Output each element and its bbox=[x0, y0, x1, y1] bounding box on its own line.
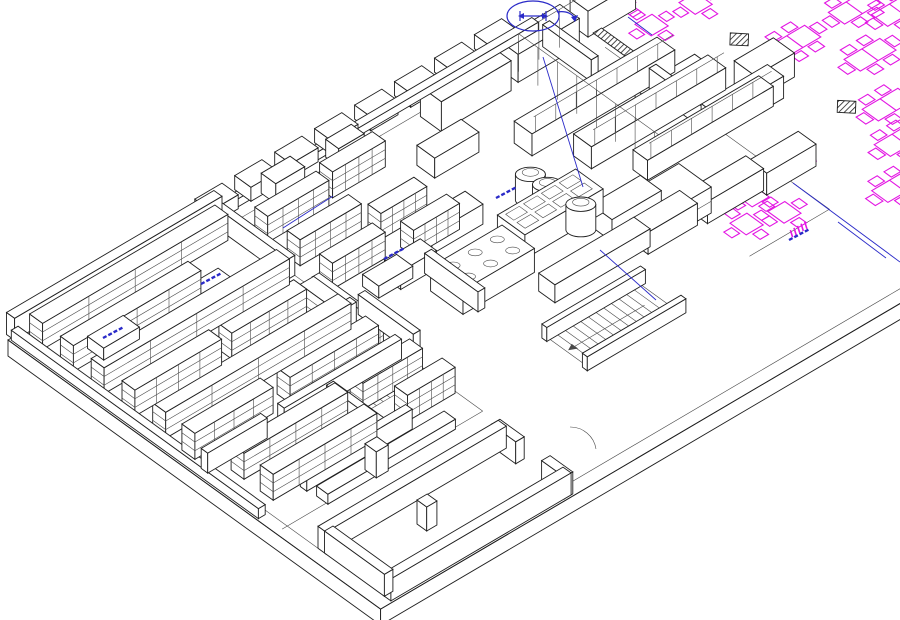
section-line bbox=[838, 222, 886, 258]
label-glyph bbox=[119, 328, 123, 330]
dining-table-4seat bbox=[673, 0, 719, 19]
kitchen-equipment bbox=[417, 119, 479, 178]
table-seam bbox=[862, 49, 878, 61]
label-glyph bbox=[800, 232, 804, 234]
chair bbox=[865, 18, 882, 30]
table-top bbox=[872, 0, 900, 26]
kitchen-equipment bbox=[417, 494, 437, 531]
label-glyph bbox=[789, 238, 793, 240]
chair bbox=[856, 113, 873, 125]
chair bbox=[810, 22, 827, 34]
section-line bbox=[628, 17, 652, 35]
chair bbox=[702, 9, 718, 19]
dining-table-6seat bbox=[838, 35, 900, 75]
dining-table-6seat bbox=[868, 120, 900, 160]
table-seam bbox=[846, 2, 862, 14]
chair bbox=[724, 228, 740, 238]
table-seam bbox=[889, 4, 900, 16]
chair bbox=[659, 11, 675, 21]
label-glyph bbox=[507, 190, 511, 192]
chair bbox=[866, 194, 883, 206]
kettle-lid bbox=[522, 169, 538, 177]
label-glyph bbox=[114, 330, 118, 332]
chair bbox=[884, 0, 900, 1]
chair bbox=[754, 210, 770, 220]
table-seam bbox=[892, 134, 900, 146]
label-glyph bbox=[201, 282, 205, 284]
label-glyph bbox=[212, 276, 216, 278]
chair bbox=[629, 29, 645, 39]
label-glyph bbox=[384, 257, 388, 259]
label-glyph bbox=[217, 274, 221, 276]
structural-column-hatched bbox=[730, 33, 749, 46]
table-seam bbox=[890, 180, 900, 192]
isometric-floor-plan-drawing bbox=[0, 0, 900, 620]
chair bbox=[822, 16, 839, 27]
chair bbox=[791, 218, 807, 228]
kitchen-equipment bbox=[365, 437, 388, 478]
label-glyph bbox=[496, 196, 500, 198]
label-glyph bbox=[389, 254, 393, 256]
table-seam bbox=[880, 99, 896, 111]
cad-viewport bbox=[0, 0, 900, 620]
chair bbox=[838, 63, 855, 75]
chair bbox=[753, 229, 769, 239]
symbol-arrowhead bbox=[518, 13, 524, 19]
dining-table-6seat bbox=[866, 166, 900, 206]
chair bbox=[885, 35, 900, 47]
label-glyph bbox=[805, 230, 809, 232]
table-top bbox=[679, 0, 712, 14]
structural-column-hatched bbox=[837, 100, 856, 113]
chair bbox=[791, 198, 807, 208]
section-line bbox=[793, 183, 900, 262]
chair bbox=[673, 7, 689, 17]
dining-table-6seat bbox=[822, 0, 886, 28]
dining-table-4seat bbox=[724, 209, 770, 240]
label-glyph bbox=[512, 188, 516, 190]
chair bbox=[762, 216, 778, 226]
label-glyph bbox=[206, 279, 210, 281]
chair bbox=[868, 148, 885, 160]
kettle-lid bbox=[573, 198, 589, 206]
door-swing-arc bbox=[570, 427, 596, 449]
dining-table-6seat bbox=[856, 85, 900, 125]
illegible-blue-label bbox=[496, 188, 515, 198]
table-seam bbox=[787, 36, 803, 48]
label-glyph bbox=[103, 336, 107, 338]
steam-kettle bbox=[566, 197, 596, 237]
furniture-equipment-layer bbox=[7, 0, 817, 601]
label-glyph bbox=[400, 249, 404, 251]
label-glyph bbox=[108, 333, 112, 335]
label-glyph bbox=[395, 251, 399, 253]
label-glyph bbox=[794, 235, 798, 237]
label-glyph bbox=[501, 193, 505, 195]
dining-table-4seat bbox=[629, 10, 675, 41]
